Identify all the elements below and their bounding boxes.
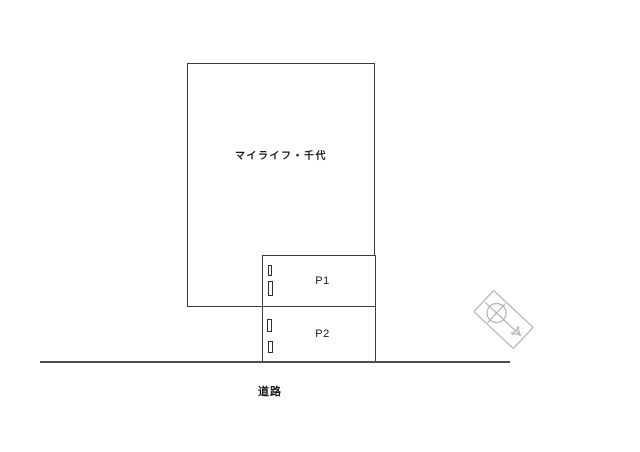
- north-arrow-icon: [462, 280, 546, 362]
- wheel-stop-mark: [268, 265, 272, 276]
- road-label: 道路: [240, 383, 300, 399]
- wheel-stop-mark: [267, 319, 272, 332]
- road-line: [40, 361, 510, 363]
- building-label: マイライフ・千代: [188, 147, 374, 162]
- site-plan-canvas: マイライフ・千代 P1 P2 道路: [0, 0, 640, 452]
- parking-space-p2-label: P2: [308, 328, 329, 340]
- parking-space-p1: P1: [262, 255, 376, 307]
- parking-space-p2: P2: [262, 306, 376, 362]
- wheel-stop-mark: [268, 341, 273, 353]
- parking-space-p1-label: P1: [308, 275, 329, 287]
- wheel-stop-mark: [268, 281, 273, 296]
